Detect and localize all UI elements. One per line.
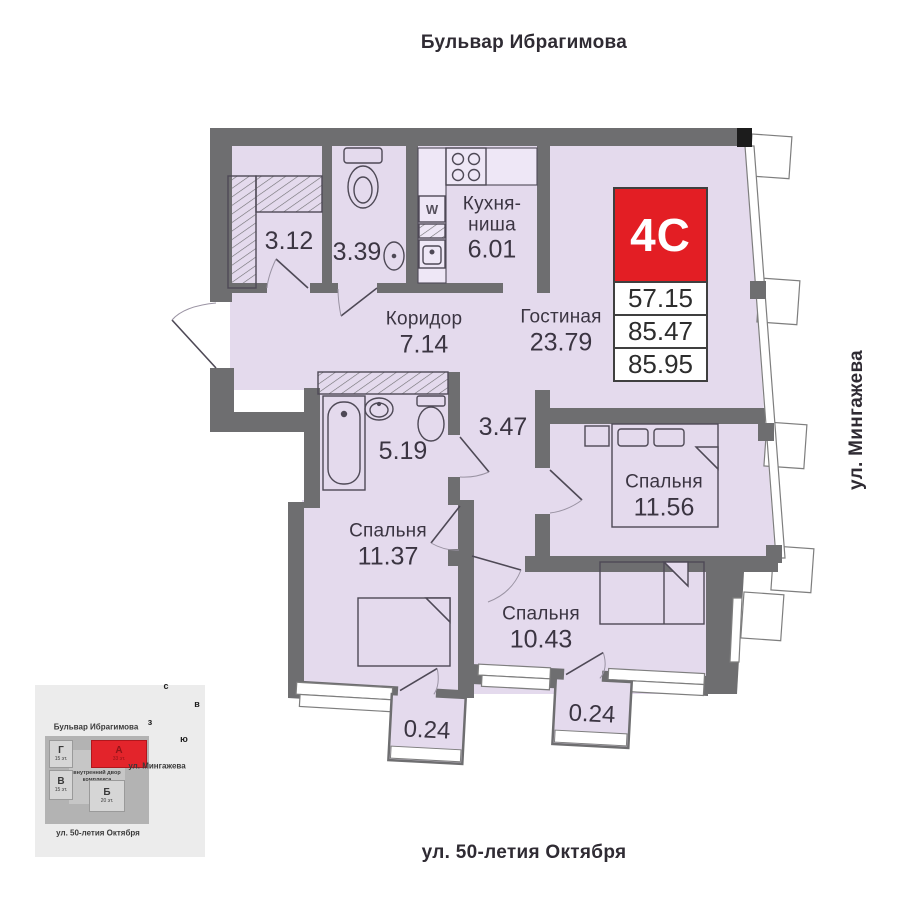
building-g: Г15 эт. bbox=[49, 740, 73, 768]
unit-type: 4C bbox=[613, 187, 708, 283]
building-v: В15 эт. bbox=[49, 770, 73, 800]
label-bedroom2: Спальня11.37 bbox=[349, 522, 427, 571]
unit-area-living: 57.15 bbox=[613, 283, 708, 316]
location-minimap: Бульвар Ибрагимова внутренний двор компл… bbox=[35, 685, 205, 857]
label-corridor: Коридор7.14 bbox=[386, 310, 462, 359]
label-hall: 3.47 bbox=[479, 413, 528, 441]
street-label-top: Бульвар Ибрагимова bbox=[421, 32, 627, 54]
label-wardrobe: 3.12 bbox=[265, 227, 314, 255]
label-balcony2: 0.24 bbox=[568, 699, 616, 728]
unit-info-badge: 4C 57.15 85.47 85.95 bbox=[613, 187, 708, 382]
building-b: Б20 эт. bbox=[89, 780, 125, 812]
corner-marker bbox=[737, 128, 752, 147]
label-kitchen: Кухня-ниша6.01 bbox=[446, 194, 538, 263]
washer-label: W bbox=[426, 202, 439, 217]
label-bedroom3: Спальня10.43 bbox=[502, 605, 580, 654]
compass-west: з bbox=[148, 717, 152, 727]
minimap-street-bottom: ул. 50-летия Октября bbox=[56, 829, 140, 838]
unit-area-full: 85.95 bbox=[613, 349, 708, 382]
label-living: Гостиная23.79 bbox=[520, 308, 601, 357]
compass-south: ю bbox=[180, 734, 188, 744]
minimap-complex: внутренний двор комплекса Г15 эт. В15 эт… bbox=[45, 736, 149, 824]
unit-area-total: 85.47 bbox=[613, 316, 708, 349]
compass-north: с bbox=[163, 681, 168, 691]
label-wc: 3.39 bbox=[333, 238, 382, 266]
compass-east: в bbox=[194, 699, 200, 709]
minimap-street-top: Бульвар Ибрагимова bbox=[54, 723, 139, 732]
street-label-bottom: ул. 50-летия Октября bbox=[422, 842, 627, 864]
label-balcony1: 0.24 bbox=[403, 715, 451, 744]
minimap-street-right: ул. Мингажева bbox=[128, 762, 185, 771]
street-label-right: ул. Мингажева bbox=[846, 350, 868, 490]
floor-plan-page: W Бульвар Ибрагимова ул. Мингажева ул. 5… bbox=[0, 0, 900, 900]
label-bedroom1: Спальня11.56 bbox=[625, 473, 703, 522]
label-bathroom: 5.19 bbox=[379, 437, 428, 465]
